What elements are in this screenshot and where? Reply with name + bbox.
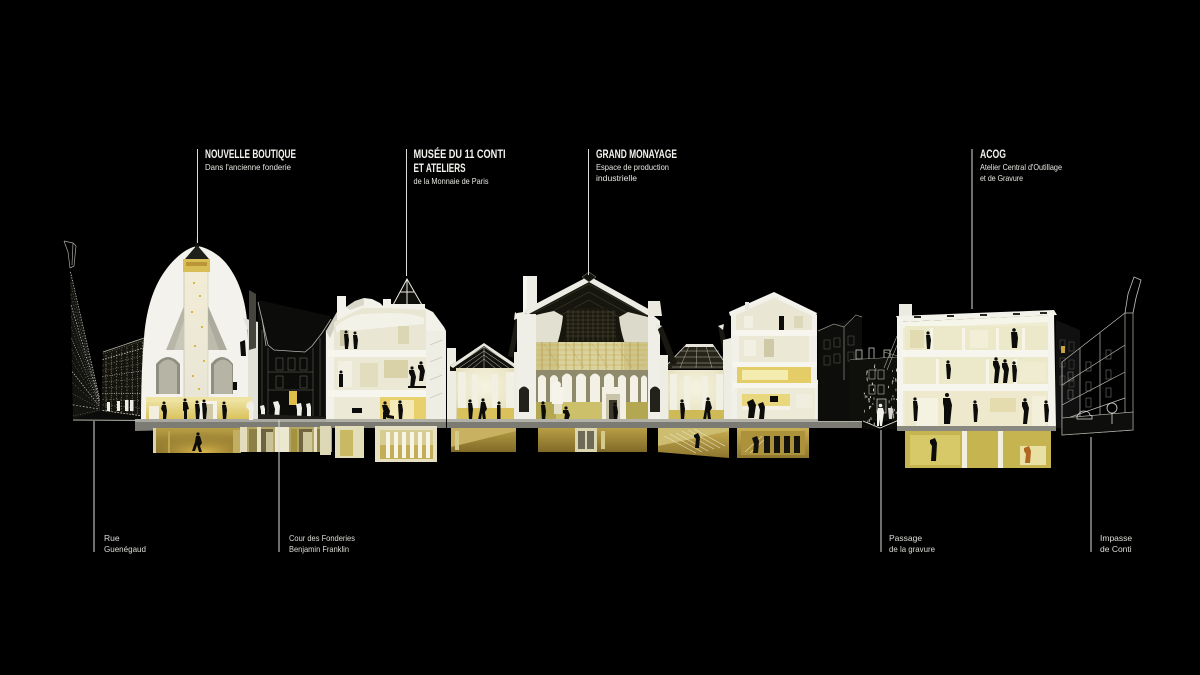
svg-text:de la gravure: de la gravure [889,544,935,554]
svg-text:Passage: Passage [889,533,922,543]
svg-text:industrielle: industrielle [596,173,637,183]
svg-text:Impasse: Impasse [1100,533,1132,543]
svg-text:de Conti: de Conti [1100,544,1132,554]
svg-text:et de Gravure: et de Gravure [980,173,1023,183]
svg-text:NOUVELLE BOUTIQUE: NOUVELLE BOUTIQUE [205,147,296,161]
svg-text:GRAND MONAYAGE: GRAND MONAYAGE [596,147,677,161]
svg-text:Dans l'ancienne fonderie: Dans l'ancienne fonderie [205,162,291,172]
svg-text:Atelier Central d'Outillage: Atelier Central d'Outillage [980,162,1062,172]
svg-text:de la Monnaie de Paris: de la Monnaie de Paris [414,176,489,186]
svg-text:ET ATELIERS: ET ATELIERS [414,161,466,175]
svg-text:Rue: Rue [104,533,120,543]
svg-text:Guenégaud: Guenégaud [104,544,146,554]
svg-text:Cour des Fonderies: Cour des Fonderies [289,533,355,543]
svg-text:Benjamin Franklin: Benjamin Franklin [289,544,349,554]
svg-text:MUSÉE DU 11 CONTI: MUSÉE DU 11 CONTI [414,146,506,161]
svg-text:ACOG: ACOG [980,147,1006,161]
svg-text:Espace de production: Espace de production [596,162,669,172]
